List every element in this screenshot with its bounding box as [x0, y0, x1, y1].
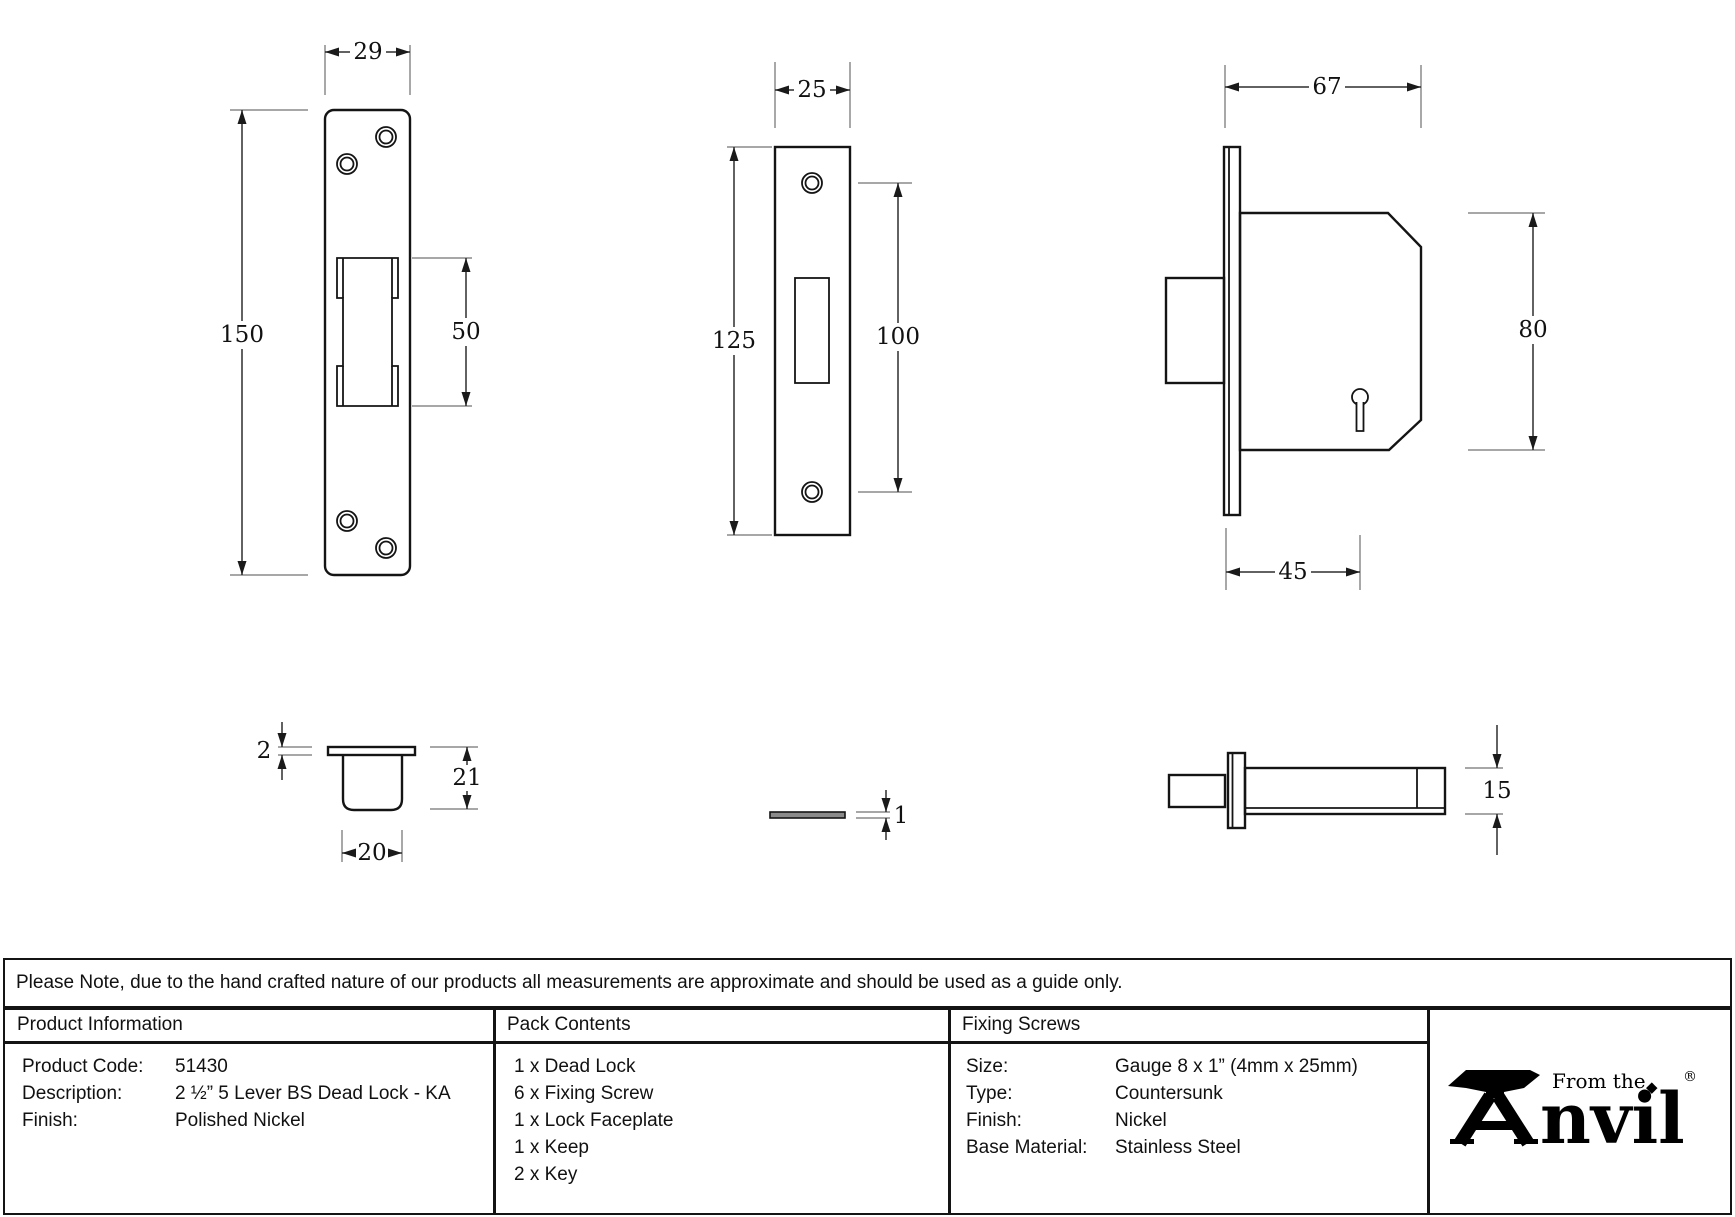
- dim-keep-width: 29: [325, 39, 410, 95]
- arrowhead: [882, 798, 891, 812]
- pack-contents-header: Pack Contents: [507, 1014, 631, 1036]
- anvil-icon: [1448, 1070, 1540, 1144]
- row-value: Polished Nickel: [175, 1107, 305, 1134]
- dim-lock-backset: 45: [1226, 528, 1360, 590]
- keep-box: [343, 755, 402, 810]
- logo-name: nvil: [1540, 1077, 1685, 1160]
- anvil-top: [1448, 1070, 1540, 1098]
- dim-label: 29: [353, 39, 382, 65]
- screw-hole: [806, 486, 819, 499]
- table-divider: [948, 1008, 951, 1215]
- keep-plate-outline: [325, 110, 410, 575]
- row-label: Finish:: [966, 1107, 1115, 1134]
- screw-hole: [380, 542, 393, 555]
- table-row: Product Code: 51430: [22, 1053, 487, 1080]
- arrowhead: [342, 849, 356, 858]
- arrowhead: [462, 258, 471, 272]
- row-value: Stainless Steel: [1115, 1134, 1241, 1161]
- note-text: Please Note, due to the hand crafted nat…: [16, 972, 1123, 994]
- dim-label: 25: [797, 77, 826, 103]
- fixing-screws-cell: Size: Gauge 8 x 1” (4mm x 25mm) Type: Co…: [966, 1053, 1416, 1161]
- registered-mark: ®: [1683, 1069, 1697, 1085]
- bolt-slot: [795, 278, 829, 383]
- table-row: Finish: Polished Nickel: [22, 1107, 487, 1134]
- screw-hole: [380, 131, 393, 144]
- table-row: Type: Countersunk: [966, 1080, 1416, 1107]
- dim-keep-box-width: 20: [342, 830, 402, 866]
- arrowhead: [463, 795, 472, 809]
- faceplate-edge-drawing: 1: [770, 790, 908, 840]
- arrowhead: [894, 478, 903, 492]
- list-item: 1 x Keep: [514, 1134, 939, 1161]
- from-the-anvil-logo: From the nvil ◆ ®: [1440, 1055, 1720, 1170]
- dim-label: 45: [1278, 559, 1307, 585]
- keyhole-stem: [1357, 402, 1364, 431]
- row-value: Nickel: [1115, 1107, 1167, 1134]
- row-value: 51430: [175, 1053, 228, 1080]
- dim-faceplate-width: 25: [775, 62, 850, 128]
- arrowhead: [278, 755, 287, 769]
- lock-edge-drawing: 15: [1169, 725, 1512, 855]
- table-row: Size: Gauge 8 x 1” (4mm x 25mm): [966, 1053, 1416, 1080]
- lock-faceplate-edge: [1224, 147, 1240, 515]
- pack-contents-cell: 1 x Dead Lock 6 x Fixing Screw 1 x Lock …: [514, 1053, 939, 1188]
- arrowhead: [730, 521, 739, 535]
- table-header-rule: [3, 1041, 1429, 1044]
- row-value: Countersunk: [1115, 1080, 1223, 1107]
- lock-body-drawing: 67 80 45: [1166, 65, 1554, 590]
- technical-drawings: 29 150 50: [0, 0, 1735, 960]
- arrowhead: [462, 392, 471, 406]
- dim-label: 80: [1518, 317, 1547, 343]
- arrowhead: [775, 86, 789, 95]
- keep-front-drawing: 29 150 50: [219, 39, 483, 575]
- anvil-crossbar: [1474, 1121, 1514, 1130]
- table-divider: [493, 1008, 496, 1215]
- dim-label: 1: [894, 803, 909, 829]
- dim-label: 125: [712, 328, 756, 354]
- arrowhead: [1529, 436, 1538, 450]
- arrowhead: [1529, 213, 1538, 227]
- fixing-screws-header: Fixing Screws: [962, 1014, 1080, 1036]
- arrowhead: [238, 110, 247, 124]
- list-item: 1 x Dead Lock: [514, 1053, 939, 1080]
- keep-bolt-cutout: [337, 258, 398, 406]
- table-row: Description: 2 ½” 5 Lever BS Dead Lock -…: [22, 1080, 487, 1107]
- row-label: Description:: [22, 1080, 175, 1107]
- dim-label: 15: [1482, 778, 1511, 804]
- arrowhead: [1493, 754, 1502, 768]
- dim-label: 100: [876, 324, 920, 350]
- anvil-foot: [1450, 1139, 1474, 1144]
- row-label: Finish:: [22, 1107, 175, 1134]
- dim-keep-slot: 50: [412, 258, 483, 406]
- dim-keep-lip: 2: [257, 722, 312, 780]
- product-information-cell: Product Code: 51430 Description: 2 ½” 5 …: [22, 1053, 487, 1134]
- arrowhead: [278, 733, 287, 747]
- row-label: Size:: [966, 1053, 1115, 1080]
- dim-faceplate-height: 125: [709, 147, 772, 535]
- screw-hole: [341, 515, 354, 528]
- list-item: 1 x Lock Faceplate: [514, 1107, 939, 1134]
- row-value: Gauge 8 x 1” (4mm x 25mm): [1115, 1053, 1358, 1080]
- dim-keep-height: 150: [219, 110, 308, 575]
- dim-keep-depth: 21: [430, 747, 482, 809]
- arrowhead: [1226, 568, 1240, 577]
- row-label: Base Material:: [966, 1134, 1115, 1161]
- dim-label: 20: [357, 840, 386, 866]
- arrowhead: [730, 147, 739, 161]
- anvil-leg-left: [1460, 1096, 1490, 1143]
- faceplate-edge: [1228, 753, 1245, 828]
- table-divider: [1427, 1008, 1430, 1215]
- dim-label: 21: [452, 765, 481, 791]
- keyhole-icon: [1352, 389, 1368, 431]
- keep-screw-holes: [337, 127, 396, 558]
- arrowhead: [882, 818, 891, 832]
- dim-lock-thickness: 15: [1465, 725, 1512, 855]
- arrowhead: [463, 747, 472, 761]
- dim-lock-height: 80: [1468, 213, 1554, 450]
- arrowhead: [388, 849, 402, 858]
- faceplate-front-drawing: 25 125 100: [709, 62, 923, 535]
- arrowhead: [836, 86, 850, 95]
- dim-faceplate-thickness: 1: [856, 790, 908, 840]
- arrowhead: [1493, 814, 1502, 828]
- arrowhead: [238, 561, 247, 575]
- row-label: Type:: [966, 1080, 1115, 1107]
- keep-lip-plate: [328, 747, 415, 755]
- anvil-foot: [1514, 1139, 1538, 1144]
- list-item: 6 x Fixing Screw: [514, 1080, 939, 1107]
- dim-label: 67: [1312, 74, 1341, 100]
- arrowhead: [396, 48, 410, 57]
- bolt-edge: [1169, 775, 1225, 807]
- screw-hole: [806, 177, 819, 190]
- keep-side-drawing: 2 21 20: [257, 722, 482, 866]
- dim-label: 2: [257, 738, 272, 764]
- table-row: Finish: Nickel: [966, 1107, 1416, 1134]
- screw-hole: [341, 158, 354, 171]
- faceplate-outline: [775, 147, 850, 535]
- anvil-leg-right: [1498, 1096, 1528, 1143]
- row-value: 2 ½” 5 Lever BS Dead Lock - KA: [175, 1080, 451, 1107]
- product-information-header: Product Information: [17, 1014, 183, 1036]
- faceplate-edge-plate: [770, 812, 845, 818]
- arrowhead: [1407, 83, 1421, 92]
- dim-label: 150: [220, 322, 264, 348]
- arrowhead: [325, 48, 339, 57]
- lock-case-outline: [1240, 213, 1421, 450]
- dim-lock-width: 67: [1225, 65, 1421, 128]
- arrowhead: [1225, 83, 1239, 92]
- row-label: Product Code:: [22, 1053, 175, 1080]
- measurement-note: Please Note, due to the hand crafted nat…: [3, 958, 1732, 1008]
- dim-label: 50: [451, 319, 480, 345]
- dim-faceplate-hole-spacing: 100: [858, 183, 923, 492]
- list-item: 2 x Key: [514, 1161, 939, 1188]
- diamond-icon: ◆: [1646, 1078, 1658, 1096]
- table-row: Base Material: Stainless Steel: [966, 1134, 1416, 1161]
- spec-sheet-page: 29 150 50: [0, 0, 1735, 1217]
- arrowhead: [1346, 568, 1360, 577]
- arrowhead: [894, 183, 903, 197]
- bolt: [1166, 278, 1224, 383]
